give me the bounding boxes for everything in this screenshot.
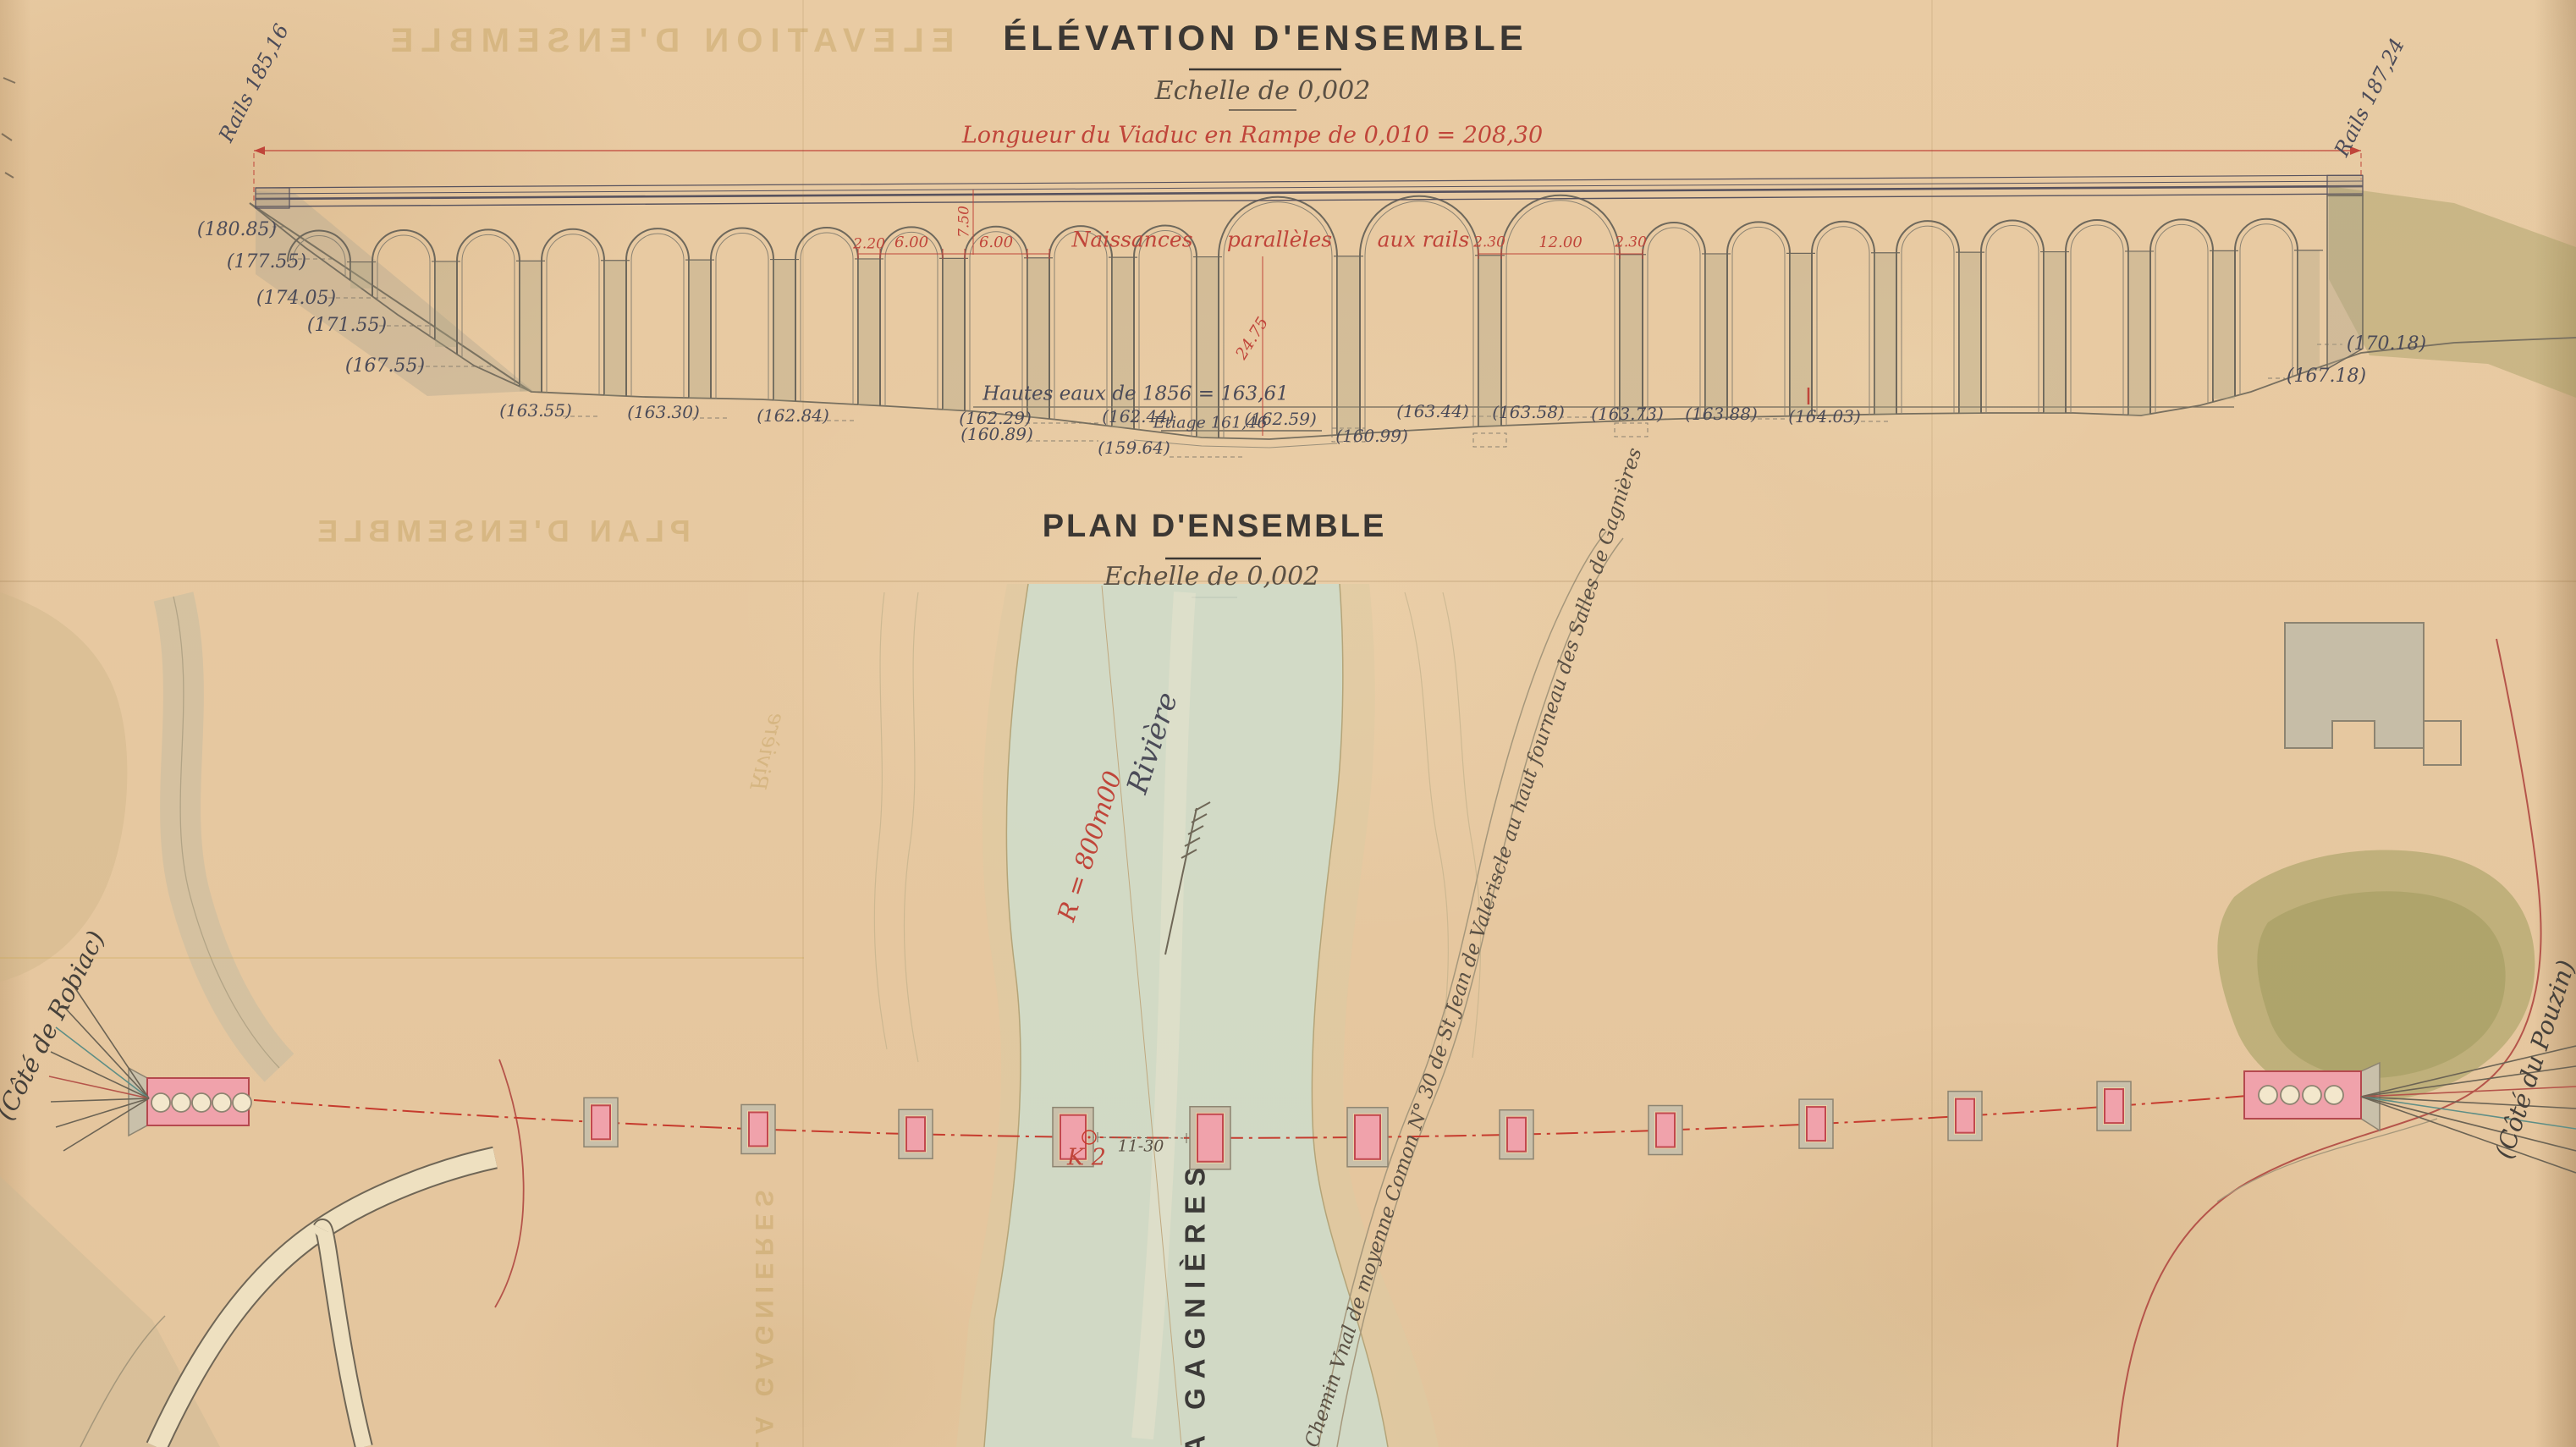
level-label: (180.85) <box>197 221 277 239</box>
river-word-label: Rivière <box>1123 689 1182 797</box>
springing-note-word: aux rails <box>1378 229 1470 250</box>
elevation-title: ÉLÉVATION D'ENSEMBLE <box>1003 20 1527 56</box>
level-label: (164.03) <box>1788 408 1861 425</box>
rail-level-left: Rails 185,16 <box>216 21 292 146</box>
level-label: (163.73) <box>1591 405 1664 422</box>
level-label: (163.30) <box>627 404 700 421</box>
dim-label: 2.20 <box>853 238 885 252</box>
dim-label: 2.30 <box>1615 236 1647 250</box>
level-label: (163.88) <box>1685 405 1758 422</box>
springing-note-word: Naissances <box>1071 229 1192 250</box>
rail-level-right: Rails 187,24 <box>2331 36 2408 160</box>
dim-label: 6.00 <box>979 235 1013 250</box>
bleedthrough-river-word: Rivière <box>746 710 787 793</box>
curve-radius-label: R = 800m00 <box>1054 768 1126 924</box>
viaduct-length-note: Longueur du Viaduc en Rampe de 0,010 = 2… <box>962 124 1543 147</box>
springing-note-word: parallèles <box>1227 229 1332 250</box>
km-marker-label: K 2 <box>1067 1147 1106 1169</box>
elevation-scale: Echelle de 0,002 <box>1155 79 1371 104</box>
level-label: (171.55) <box>307 316 387 335</box>
plan-title: PLAN D'ENSEMBLE <box>1043 510 1387 542</box>
dim-label: 12.00 <box>1538 235 1582 250</box>
level-label: (162.84) <box>757 407 829 424</box>
dim-label-vertical: 7.50 <box>958 206 972 238</box>
level-label: (163.58) <box>1492 404 1565 421</box>
level-label: (174.05) <box>256 289 336 308</box>
level-label: (160.89) <box>960 426 1033 443</box>
level-label: (167.55) <box>345 357 425 376</box>
bleedthrough-elevation-title: ELEVATION D'ENSEMBLE <box>383 24 955 58</box>
bleedthrough-plan-title: PLAN D'ENSEMBLE <box>311 516 691 547</box>
level-label: (167.18) <box>2287 367 2366 386</box>
level-label: (163.55) <box>499 402 572 419</box>
level-label: (170.18) <box>2347 335 2426 354</box>
km-offset-label: 11-30 <box>1118 1139 1164 1155</box>
river-name-label: LA GAGNIÈRES <box>1181 1158 1209 1447</box>
level-label: (159.64) <box>1098 439 1170 456</box>
scanned-drawing-sheet: ELEVATION D'ENSEMBLE PLAN D'ENSEMBLE LA … <box>0 0 2576 1447</box>
high-water-label: Hautes eaux de 1856 = 163,61 <box>983 385 1289 404</box>
low-water-label: Etiage 161,46 <box>1153 415 1268 432</box>
level-label: (160.99) <box>1335 427 1408 444</box>
side-label-left: (Côté de Robiac) <box>0 927 109 1124</box>
dim-label: 6.00 <box>894 235 928 250</box>
level-label: (177.55) <box>227 253 306 272</box>
dim-label-vertical: 24.75 <box>1234 315 1272 362</box>
dim-label: 2.30 <box>1473 236 1505 250</box>
bleedthrough-river-name: LA GAGNIERES <box>751 1183 776 1447</box>
plan-scale: Echelle de 0,002 <box>1104 564 1320 590</box>
side-label-right: (Côté du Pouzin) <box>2491 957 2576 1161</box>
level-label: (163.44) <box>1396 403 1469 420</box>
road-label: Chemin Vnal de moyenne Comon N° 30 de St… <box>1302 446 1645 1447</box>
